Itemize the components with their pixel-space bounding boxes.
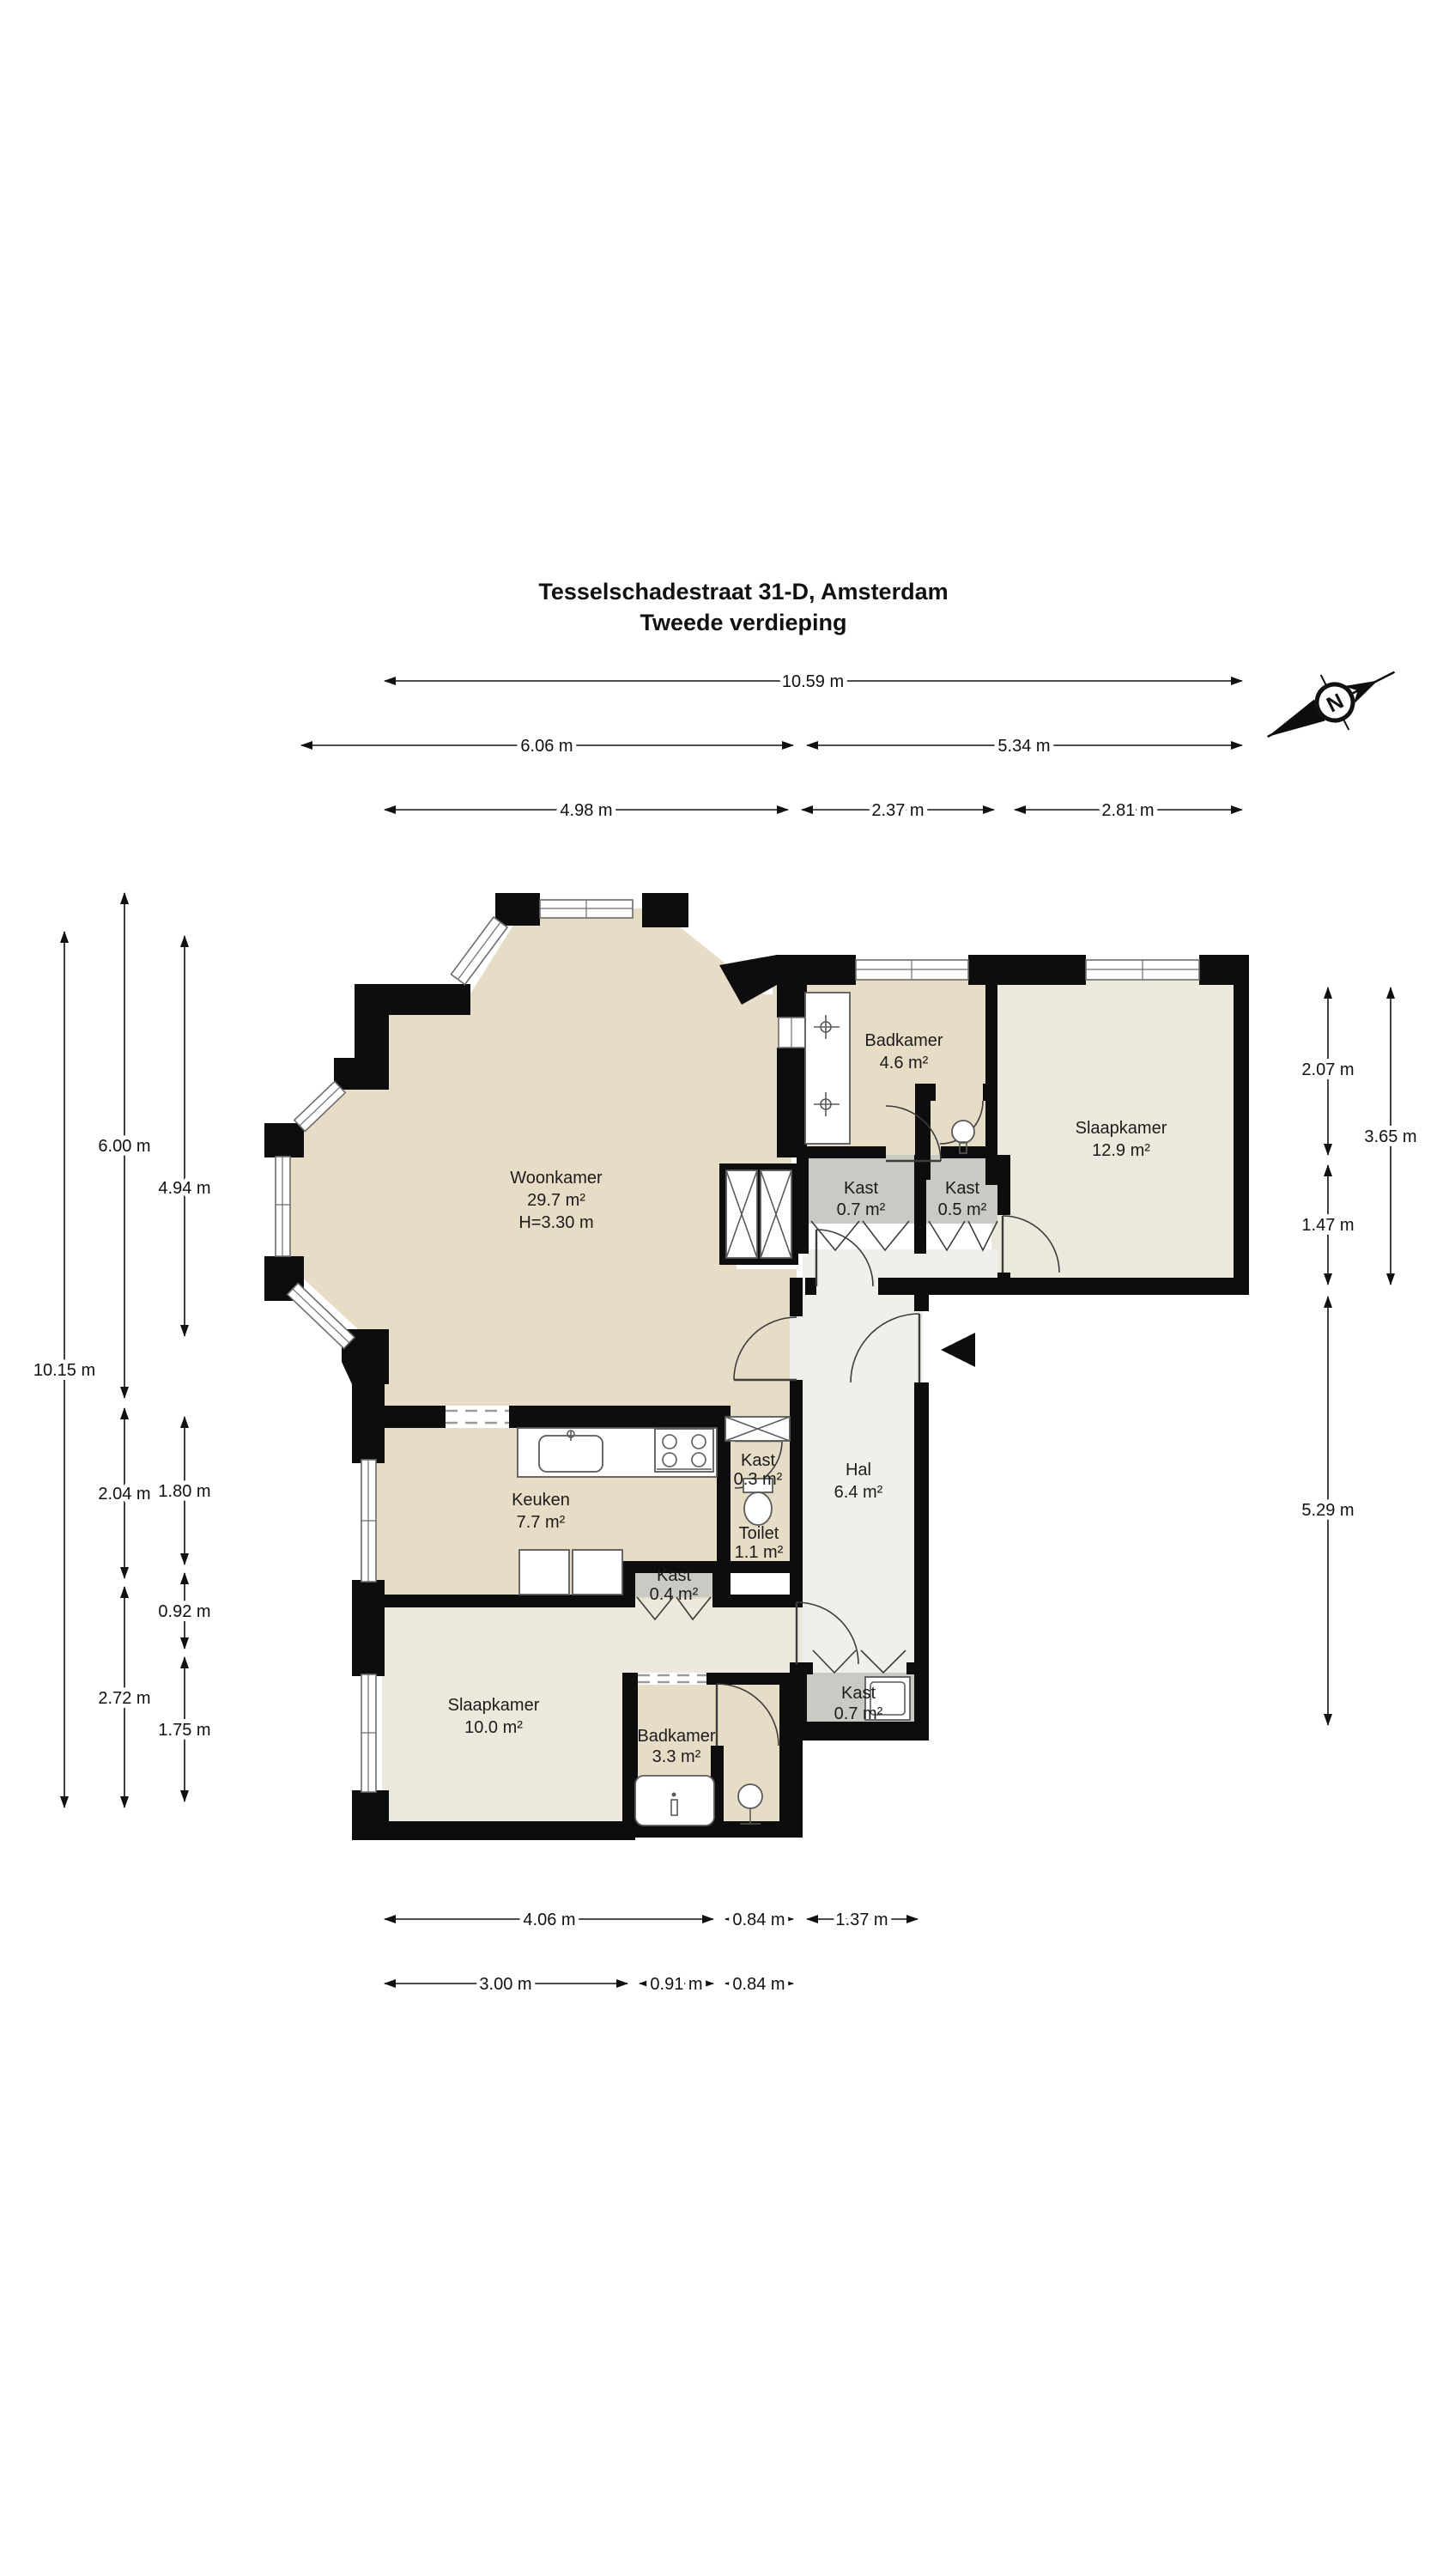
vanity-icon (805, 993, 850, 1144)
svg-text:7.7 m²: 7.7 m² (517, 1513, 566, 1532)
badkamer-boven-side-window-icon (779, 1018, 805, 1048)
svg-text:0.7 m²: 0.7 m² (834, 1704, 883, 1723)
badkamer-boven-window-icon (856, 960, 968, 980)
dim-bottom-d: 3.00 m (385, 1975, 627, 1994)
svg-text:0.5 m²: 0.5 m² (938, 1200, 987, 1219)
svg-text:Badkamer: Badkamer (864, 1031, 943, 1050)
svg-text:4.06 m: 4.06 m (523, 1911, 575, 1929)
svg-text:Badkamer: Badkamer (637, 1727, 715, 1746)
dim-left-a: 6.00 m (98, 893, 150, 1398)
svg-text:1.37 m: 1.37 m (835, 1911, 888, 1929)
svg-text:1.1 m²: 1.1 m² (735, 1543, 784, 1562)
room-fills (276, 908, 1245, 1833)
dim-top-total: 10.59 m (385, 672, 1242, 691)
floorplan-page: Tesselschadestraat 31-D, Amsterdam Tweed… (0, 0, 1449, 2576)
plan-title: Tesselschadestraat 31-D, Amsterdam Tweed… (538, 579, 948, 635)
svg-text:1.47 m: 1.47 m (1301, 1216, 1354, 1235)
svg-text:0.4 m²: 0.4 m² (650, 1585, 699, 1604)
dim-left-d: 4.94 m (158, 936, 210, 1336)
dim-right-total: 3.65 m (1364, 987, 1416, 1285)
bay-window-left-icon (276, 1157, 290, 1256)
svg-text:6.4 m²: 6.4 m² (834, 1483, 883, 1502)
svg-text:10.59 m: 10.59 m (782, 672, 844, 691)
svg-text:0.91 m: 0.91 m (650, 1975, 702, 1994)
svg-text:0.84 m: 0.84 m (732, 1975, 785, 1994)
svg-text:2.72 m: 2.72 m (98, 1689, 150, 1708)
svg-text:Keuken: Keuken (512, 1491, 570, 1510)
svg-text:Kast: Kast (841, 1684, 876, 1703)
svg-text:Kast: Kast (741, 1451, 775, 1470)
floorplan-svg: Tesselschadestraat 31-D, Amsterdam Tweed… (0, 0, 1449, 2576)
svg-text:Slaapkamer: Slaapkamer (1076, 1119, 1167, 1138)
svg-text:Kast: Kast (945, 1179, 979, 1198)
svg-text:0.3 m²: 0.3 m² (734, 1470, 783, 1489)
dim-left-g: 1.75 m (158, 1657, 210, 1801)
svg-text:6.06 m: 6.06 m (520, 737, 573, 756)
dim-top-c: 2.81 m (1015, 801, 1242, 820)
title-floor: Tweede verdieping (640, 610, 846, 635)
dim-bottom-c: 1.37 m (807, 1911, 918, 1929)
keuken-window-icon (361, 1460, 376, 1582)
svg-text:2.04 m: 2.04 m (98, 1485, 150, 1504)
svg-text:0.7 m²: 0.7 m² (837, 1200, 886, 1219)
closet-x-icon (719, 1163, 798, 1265)
svg-text:Toilet: Toilet (739, 1524, 779, 1543)
svg-text:Kast: Kast (657, 1566, 691, 1585)
dim-top-b: 2.37 m (802, 801, 994, 820)
svg-text:Woonkamer: Woonkamer (510, 1169, 603, 1188)
compass-icon: N (1253, 645, 1409, 765)
dim-bottom-f: 0.84 m (725, 1975, 793, 1994)
dim-left-e: 1.80 m (158, 1417, 210, 1564)
svg-text:0.92 m: 0.92 m (158, 1602, 210, 1621)
dim-top-a: 4.98 m (385, 801, 788, 820)
bifold-kast07-boven (811, 1221, 909, 1250)
slaapkamer-links-window-icon (361, 1674, 376, 1792)
svg-text:4.94 m: 4.94 m (158, 1179, 210, 1198)
dim-top-left: 6.06 m (301, 737, 793, 756)
dim-bottom-b: 0.84 m (725, 1911, 793, 1929)
svg-text:1.80 m: 1.80 m (158, 1482, 210, 1501)
bathroom-sink-icon (635, 1776, 714, 1826)
svg-text:4.98 m: 4.98 m (560, 801, 612, 820)
svg-text:4.6 m²: 4.6 m² (880, 1054, 929, 1072)
svg-text:Kast: Kast (844, 1179, 878, 1198)
svg-text:1.75 m: 1.75 m (158, 1721, 210, 1740)
svg-text:5.34 m: 5.34 m (997, 737, 1050, 756)
entrance-arrow-icon (941, 1333, 975, 1367)
svg-text:10.0 m²: 10.0 m² (464, 1718, 523, 1737)
dim-left-f: 0.92 m (158, 1573, 210, 1649)
dim-right-a: 2.07 m (1301, 987, 1354, 1155)
svg-text:12.9 m²: 12.9 m² (1092, 1141, 1150, 1160)
label-toilet: Toilet 1.1 m² (735, 1524, 784, 1562)
dim-right-b: 1.47 m (1301, 1165, 1354, 1285)
svg-text:2.37 m: 2.37 m (871, 801, 924, 820)
dim-left-b: 2.04 m (98, 1408, 150, 1578)
stove-icon (655, 1429, 713, 1472)
title-address: Tesselschadestraat 31-D, Amsterdam (538, 579, 948, 605)
svg-text:0.84 m: 0.84 m (732, 1911, 785, 1929)
dim-top-right: 5.34 m (807, 737, 1242, 756)
svg-text:3.3 m²: 3.3 m² (652, 1747, 701, 1766)
dim-bottom-e: 0.91 m (640, 1975, 713, 1994)
svg-text:Slaapkamer: Slaapkamer (448, 1696, 540, 1715)
svg-text:29.7 m²: 29.7 m² (527, 1191, 585, 1210)
svg-text:2.07 m: 2.07 m (1301, 1060, 1354, 1079)
svg-text:2.81 m: 2.81 m (1101, 801, 1154, 820)
svg-text:6.00 m: 6.00 m (98, 1137, 150, 1156)
dim-left-total: 10.15 m (33, 932, 95, 1807)
svg-text:H=3.30 m: H=3.30 m (518, 1213, 593, 1232)
svg-text:5.29 m: 5.29 m (1301, 1501, 1354, 1520)
svg-text:3.65 m: 3.65 m (1364, 1127, 1416, 1146)
svg-text:Hal: Hal (846, 1461, 871, 1479)
svg-text:3.00 m: 3.00 m (479, 1975, 531, 1994)
svg-text:10.15 m: 10.15 m (33, 1361, 95, 1380)
dim-left-c: 2.72 m (98, 1587, 150, 1807)
dim-bottom-a: 4.06 m (385, 1911, 713, 1929)
slaapkamer-rechts-window-icon (1086, 960, 1199, 980)
kast03-x-icon (725, 1417, 790, 1441)
bay-window-top-icon (540, 900, 633, 918)
bifold-kast05 (929, 1221, 997, 1250)
dim-right-c: 5.29 m (1301, 1297, 1354, 1725)
